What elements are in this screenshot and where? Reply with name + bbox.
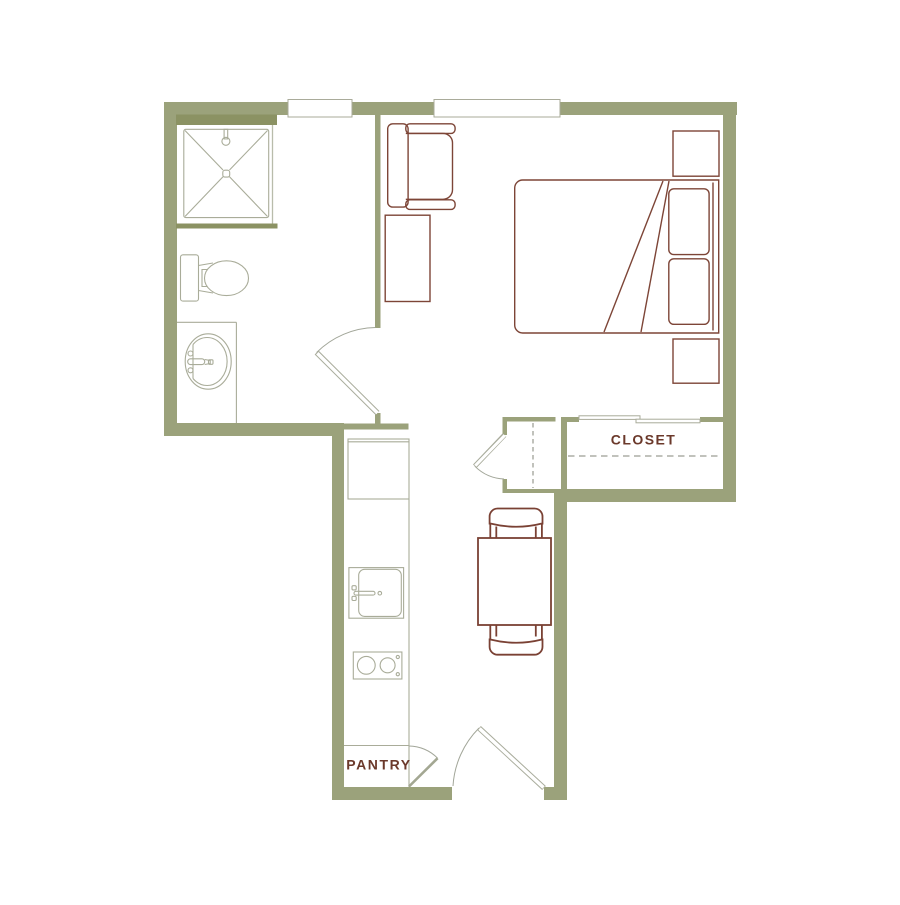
svg-text:PANTRY: PANTRY [346, 756, 411, 772]
svg-text:CLOSET: CLOSET [611, 432, 676, 448]
